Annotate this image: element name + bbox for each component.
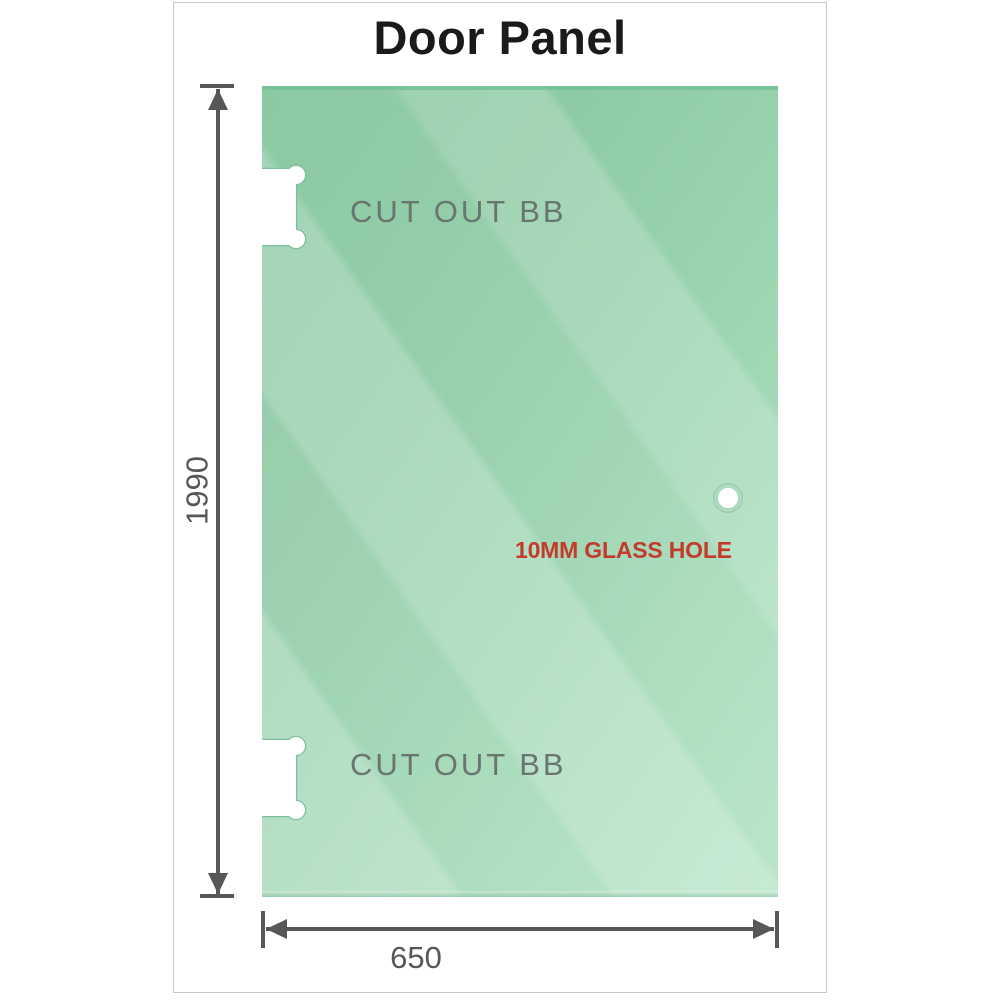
glass-hole-label: 10MM GLASS HOLE bbox=[515, 539, 732, 562]
height-dimension-bottom-tick bbox=[200, 894, 234, 898]
arrow-up-icon bbox=[208, 89, 228, 110]
arrow-left-icon bbox=[266, 919, 287, 939]
height-dimension-label: 1990 bbox=[182, 456, 213, 526]
glass-hole-icon bbox=[714, 484, 742, 512]
door-panel-drawing: Door Panel bbox=[0, 0, 1000, 1000]
top-hinge-cutout-notch-icon bbox=[262, 162, 310, 254]
cutout-bottom-label: CUT OUT BB bbox=[350, 749, 567, 780]
cutout-top-label: CUT OUT BB bbox=[350, 196, 567, 227]
width-dimension-left-tick bbox=[261, 911, 265, 948]
glass-panel: CUT OUT BB CUT OUT BB 10MM GLASS HOLE bbox=[262, 86, 778, 897]
width-dimension-label: 650 bbox=[390, 942, 442, 973]
height-dimension-top-tick bbox=[200, 84, 234, 88]
width-dimension-right-tick bbox=[775, 911, 779, 948]
bottom-hinge-cutout-notch-icon bbox=[262, 733, 310, 825]
height-dimension-line bbox=[216, 89, 220, 894]
arrow-down-icon bbox=[208, 873, 228, 894]
arrow-right-icon bbox=[753, 919, 774, 939]
width-dimension-line bbox=[266, 927, 774, 931]
page-title: Door Panel bbox=[173, 12, 827, 64]
